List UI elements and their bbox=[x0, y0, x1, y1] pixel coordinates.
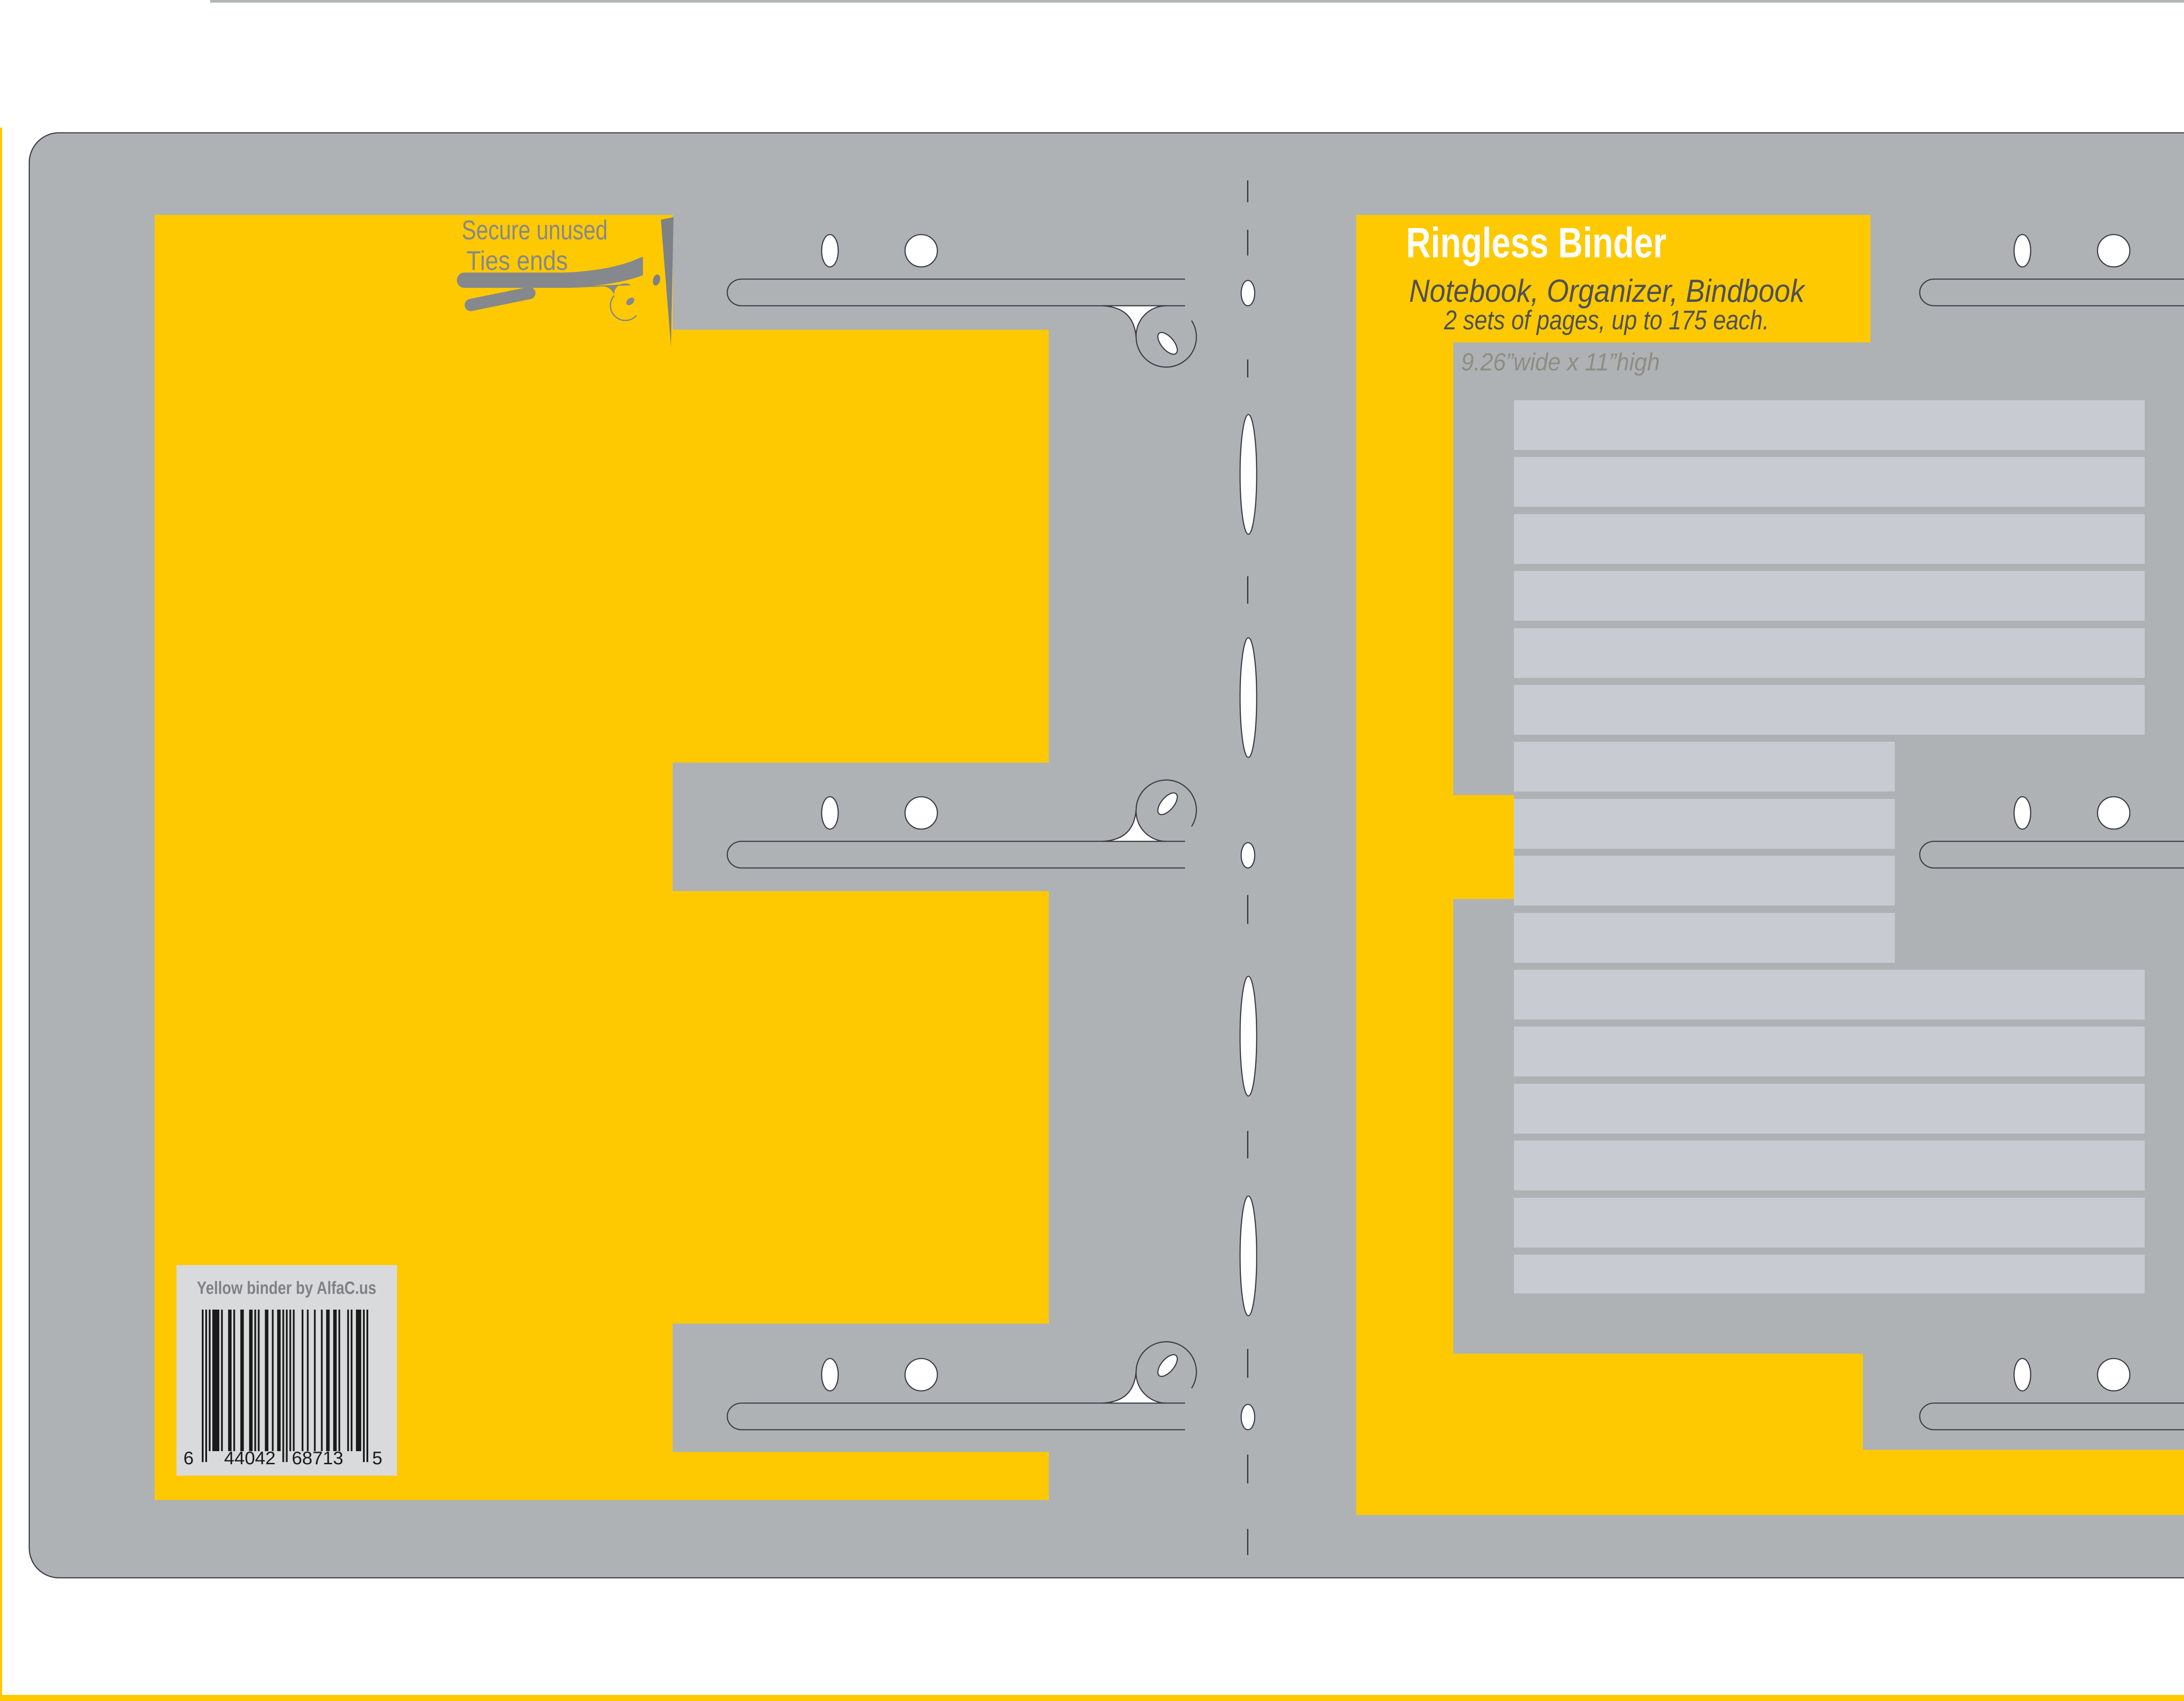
svg-text:9.26”wide x 11”high: 9.26”wide x 11”high bbox=[1461, 348, 1660, 376]
svg-text:Notebook, Organizer, Bindbook: Notebook, Organizer, Bindbook bbox=[1409, 273, 1806, 309]
svg-text:5: 5 bbox=[372, 1448, 382, 1468]
svg-text:Ringless Binder: Ringless Binder bbox=[1406, 219, 1666, 266]
svg-text:6: 6 bbox=[183, 1448, 194, 1468]
svg-text:Yellow binder by AlfaC.us: Yellow binder by AlfaC.us bbox=[197, 1278, 377, 1298]
svg-text:68713: 68713 bbox=[292, 1448, 343, 1468]
svg-text:Ties ends: Ties ends bbox=[467, 246, 568, 276]
svg-text:2 sets of pages, up to 175 eac: 2 sets of pages, up to 175 each. bbox=[1444, 305, 1769, 335]
svg-text:44042: 44042 bbox=[224, 1448, 276, 1468]
svg-text:Secure unused: Secure unused bbox=[462, 215, 608, 245]
